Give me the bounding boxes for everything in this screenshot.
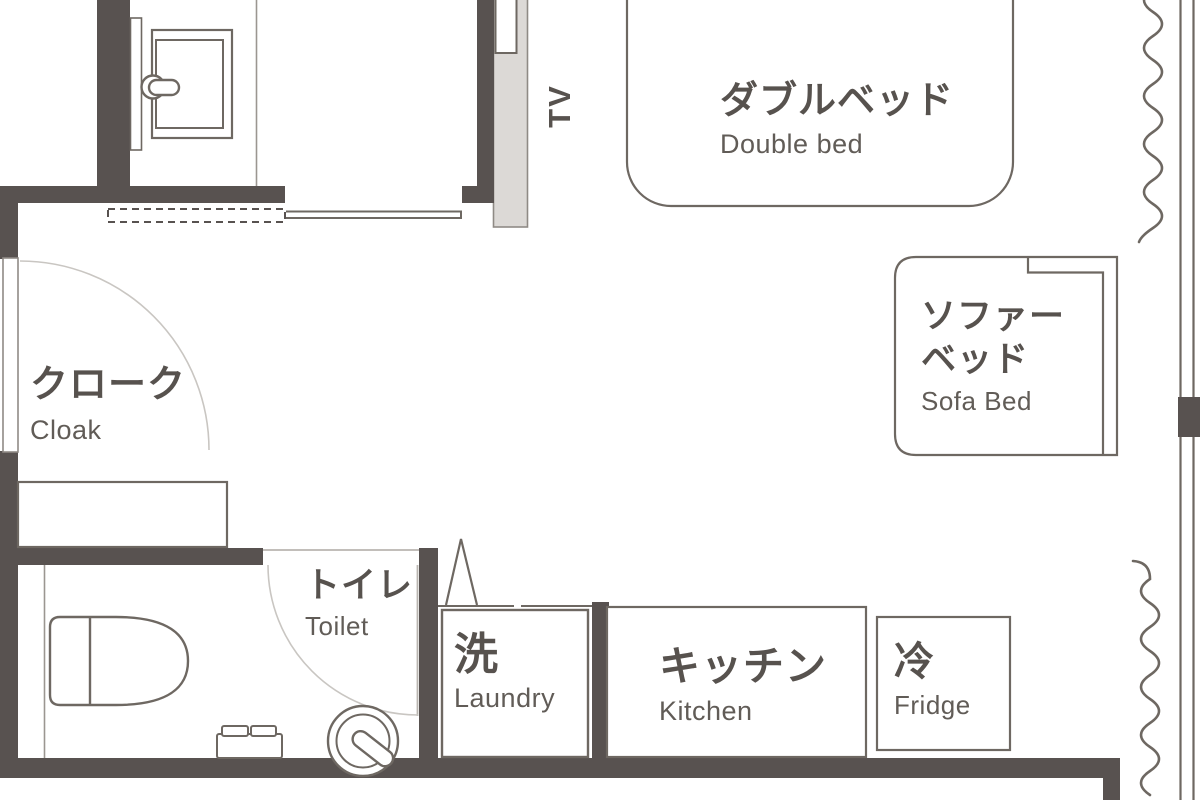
toilet-fixture (50, 617, 188, 705)
kitchen-label-ja: キッチン (659, 644, 827, 690)
sofa-bed-label-ja1: ソファー (921, 297, 1065, 336)
tv-board (494, 0, 528, 227)
laundry-label-en: Laundry (454, 683, 555, 713)
fridge-label-ja: 冷 (894, 640, 971, 685)
sofa-bed-label-en: Sofa Bed (921, 387, 1065, 416)
toilet-label-ja: トイレ (305, 566, 413, 605)
fridge-label: 冷 Fridge (894, 640, 971, 720)
kitchen-label: キッチン Kitchen (659, 644, 827, 726)
bathroom-door (131, 18, 233, 150)
cloak-shelf (18, 482, 227, 547)
fridge-label-en: Fridge (894, 691, 971, 720)
sofa-bed-label-ja2: ベッド (921, 340, 1065, 379)
laundry-label: 洗 Laundry (454, 630, 555, 714)
curtain-wave-bottom (1133, 561, 1159, 795)
curtain-waves (1133, 0, 1162, 795)
sliding-door (286, 211, 462, 220)
cloak-label-ja: クローク (30, 364, 186, 407)
laundry-label-ja: 洗 (454, 630, 555, 679)
curtain-wave-top (1139, 0, 1162, 242)
kitchen-label-en: Kitchen (659, 696, 827, 726)
sofa-bed-label: ソファー ベッド Sofa Bed (921, 297, 1065, 416)
door-swing-triangle (446, 539, 477, 605)
cloak-label-en: Cloak (30, 415, 186, 445)
toilet-label: トイレ Toilet (305, 566, 413, 641)
overhead-storage-dashed (108, 209, 285, 222)
wash-basin (328, 706, 398, 776)
tv-label: TV (542, 68, 576, 144)
slipper-rack (217, 726, 282, 758)
double-bed-label-ja: ダブルベッド (720, 80, 954, 123)
double-bed-label: ダブルベッド Double bed (720, 80, 954, 159)
toilet-label-en: Toilet (305, 612, 413, 641)
double-bed-label-en: Double bed (720, 129, 954, 159)
floor-plan: TV ダブルベッド Double bed ソファー ベッド Sofa Bed ク… (0, 0, 1200, 800)
laundry-counter (438, 539, 592, 606)
cloak-label: クローク Cloak (30, 364, 186, 445)
